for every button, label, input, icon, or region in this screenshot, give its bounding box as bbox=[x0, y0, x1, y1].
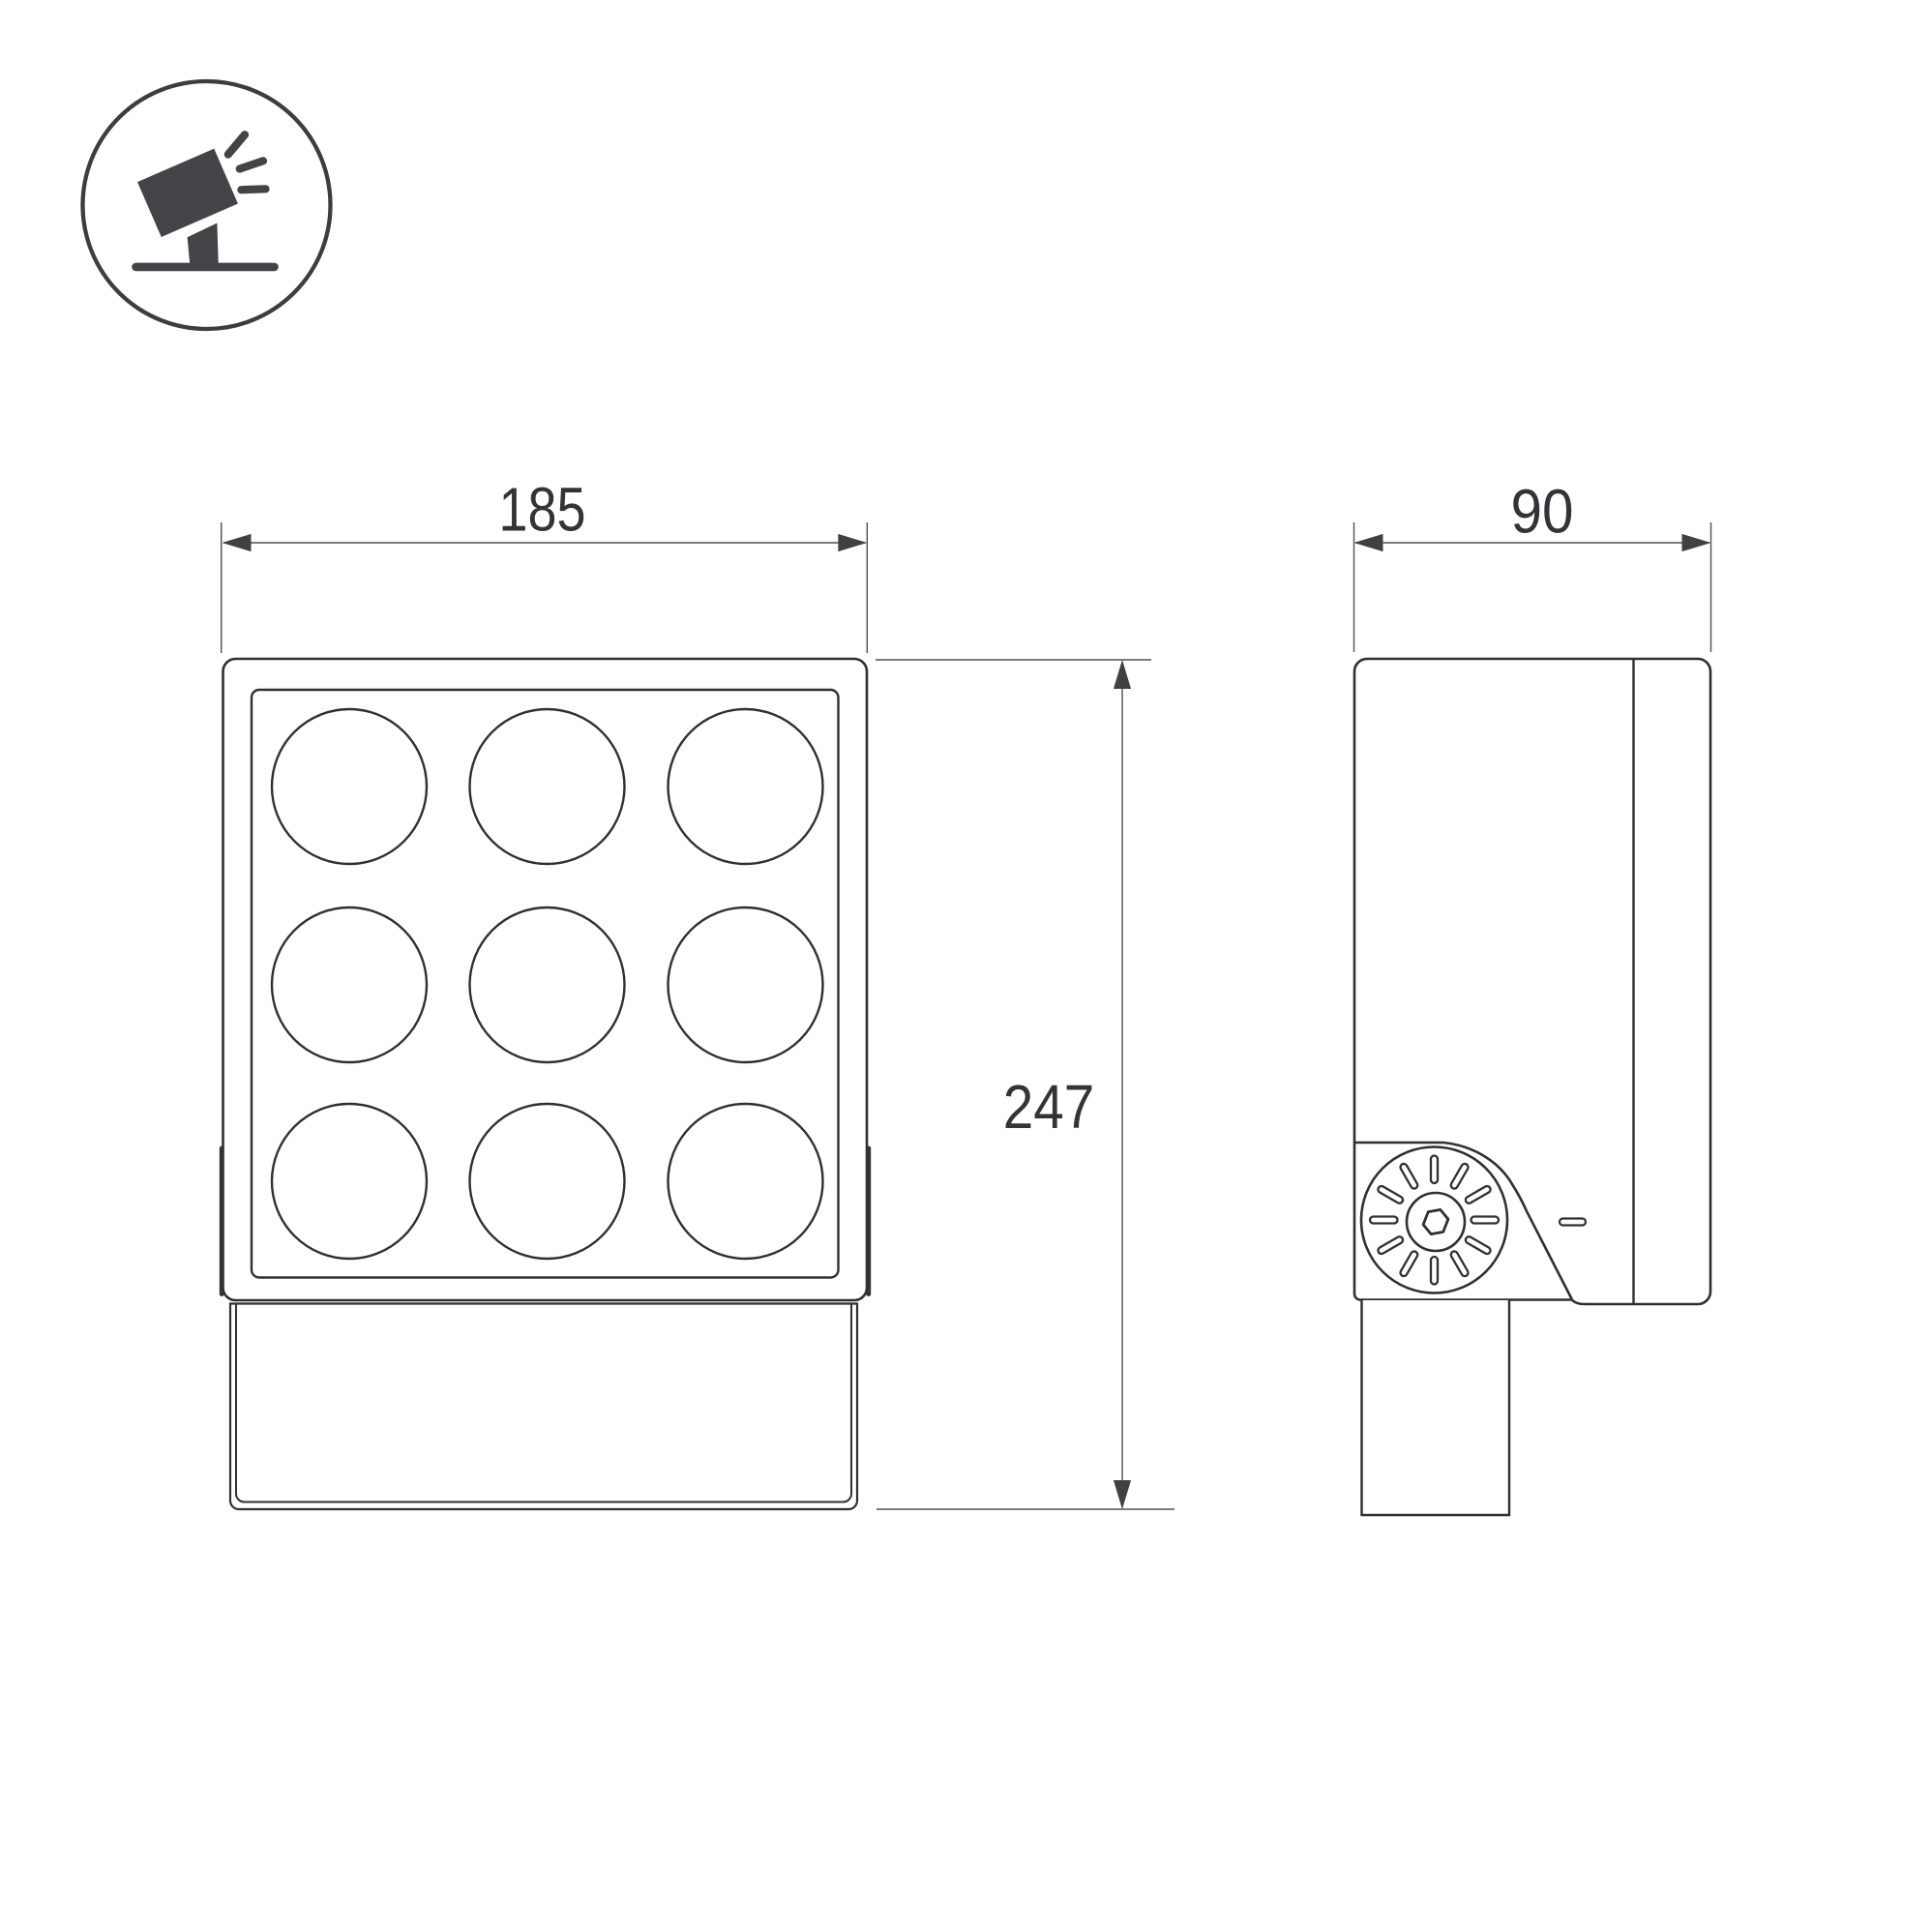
svg-text:247: 247 bbox=[1003, 1072, 1095, 1142]
svg-text:90: 90 bbox=[1511, 477, 1574, 547]
svg-text:185: 185 bbox=[499, 475, 586, 545]
